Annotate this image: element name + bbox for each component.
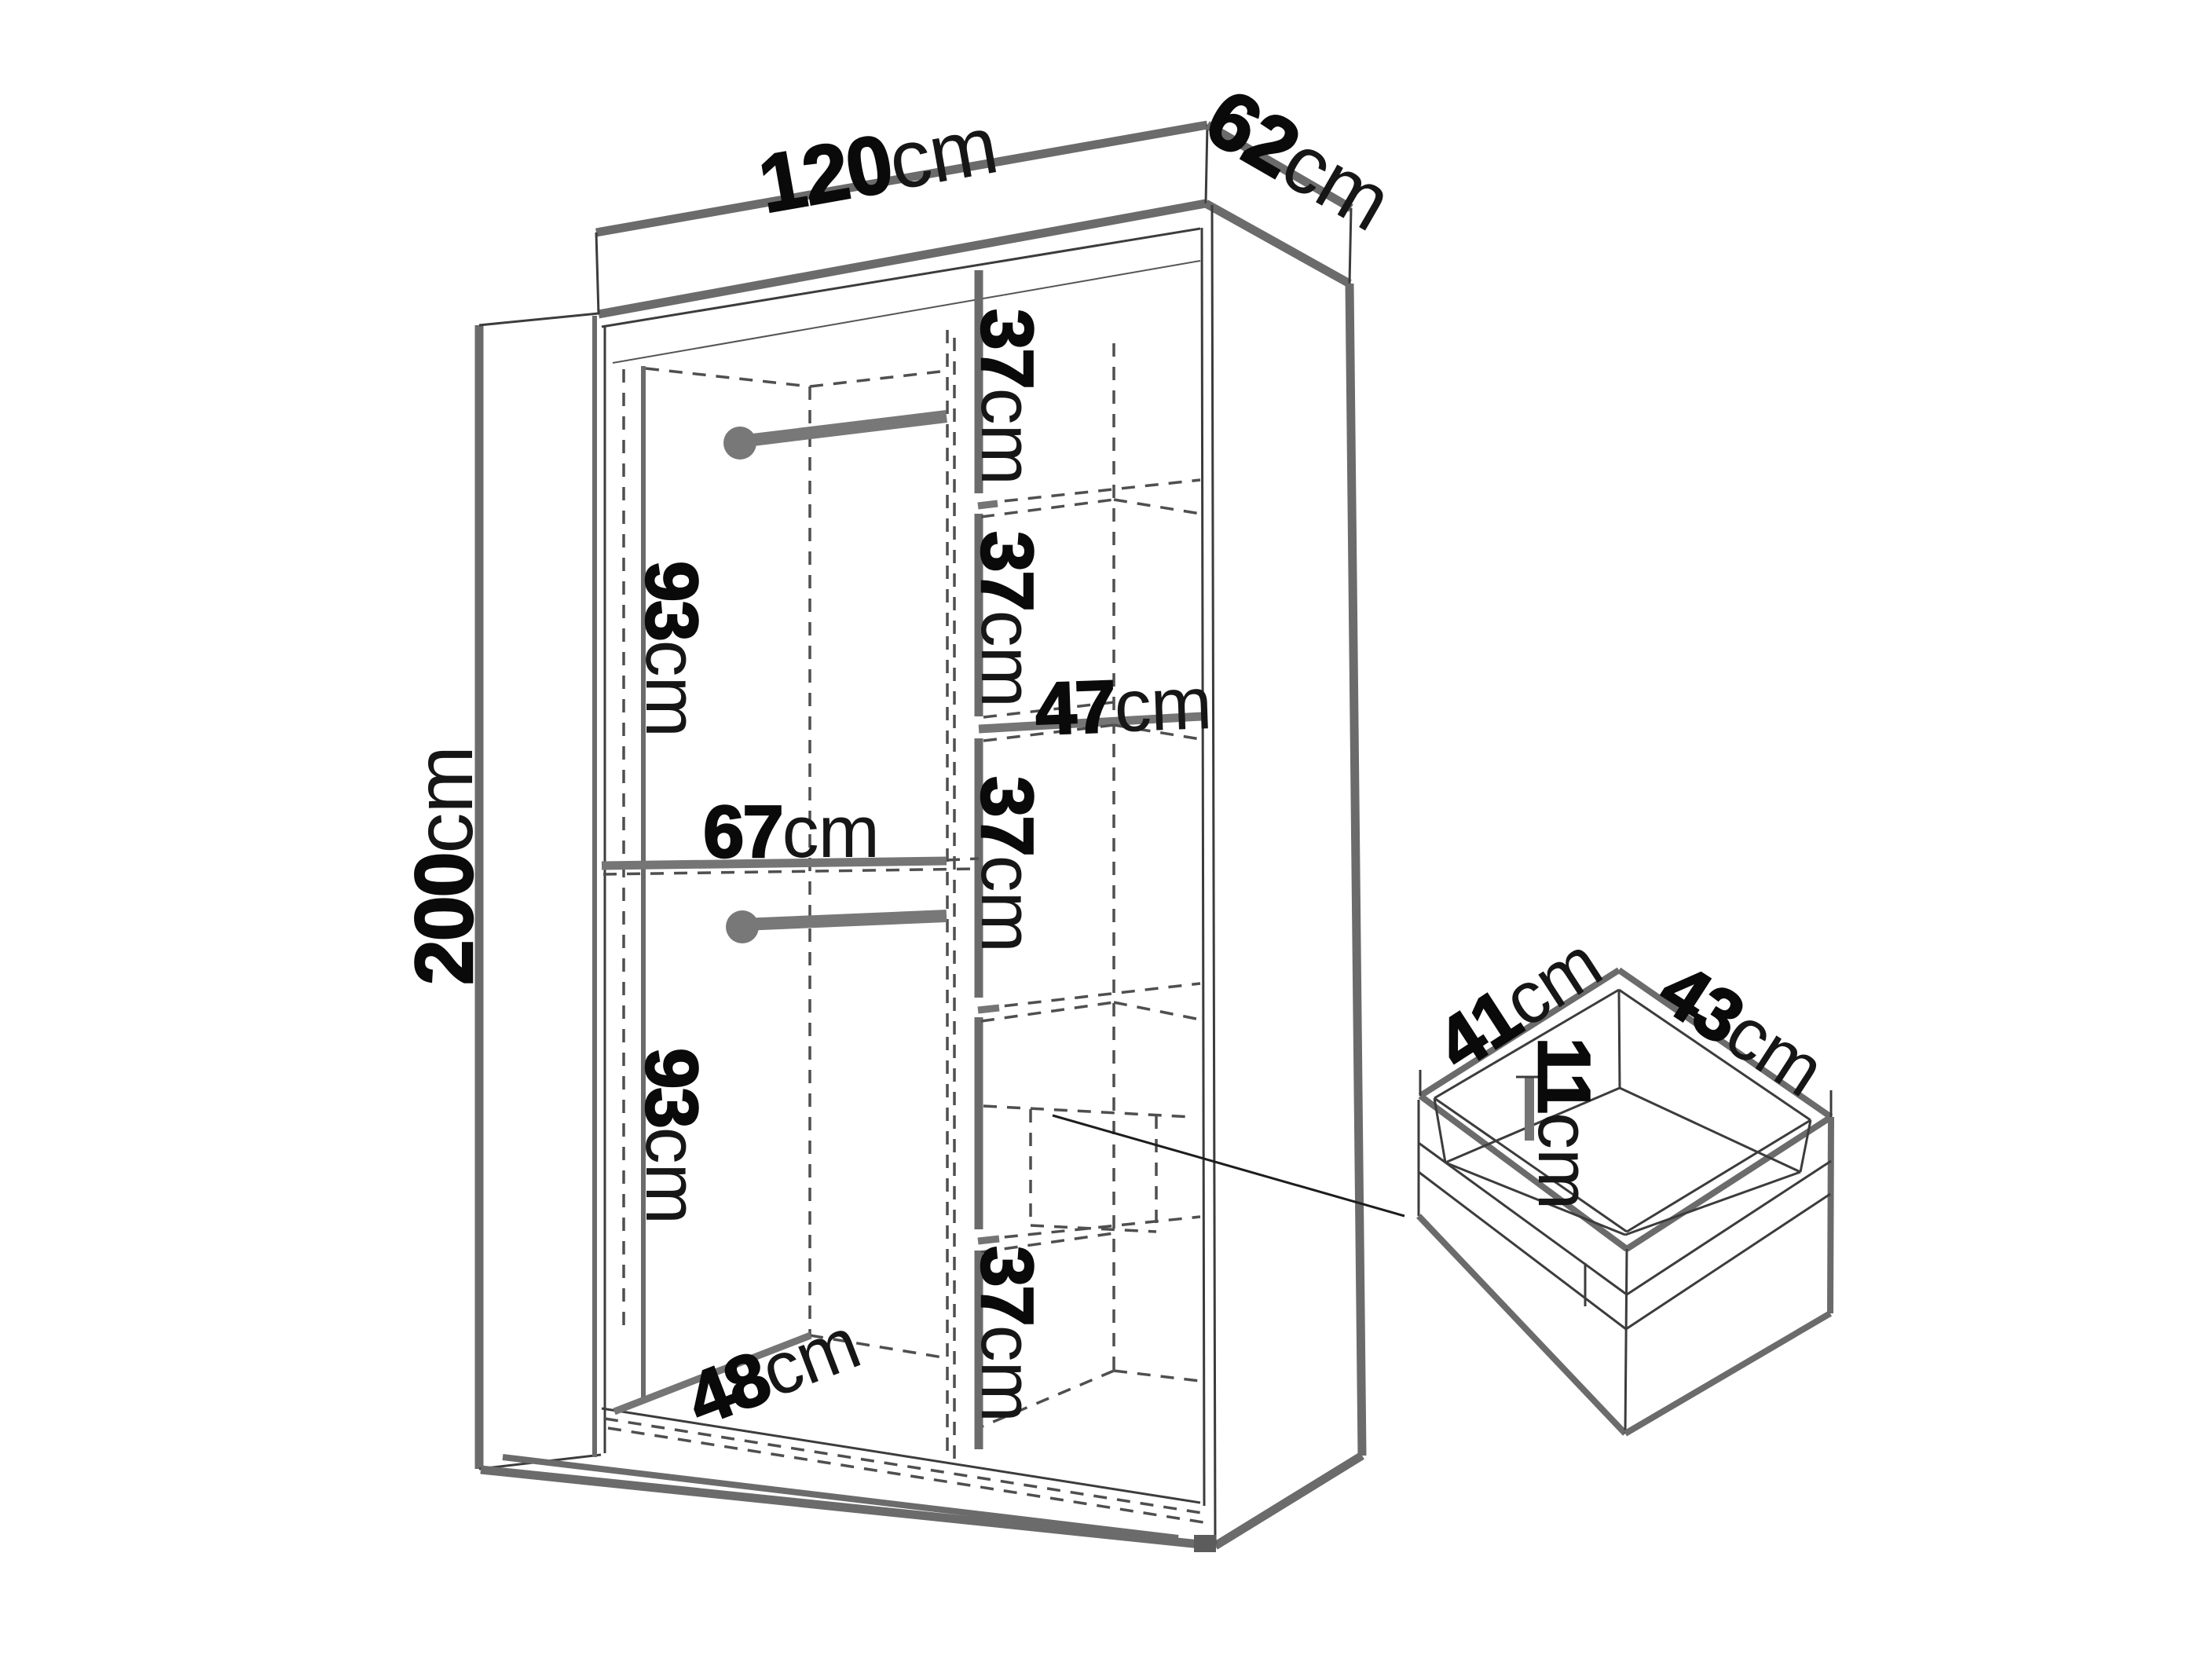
left-depth-label: 48cm <box>676 1301 870 1441</box>
diagram-canvas: 120cm 62cm 200cm 93cm 67cm 93cm 48cm 37c… <box>0 0 2212 1659</box>
height-label: 200cm <box>399 746 490 985</box>
drawer-drawing: 41cm 43cm 11cm <box>1419 921 1838 1434</box>
hanging-bottom-label: 93cm <box>632 1048 714 1224</box>
depth-label: 62cm <box>1191 72 1405 249</box>
drawer-height-label: 11cm <box>1524 1038 1606 1210</box>
wardrobe-drawing: 120cm 62cm 200cm 93cm 67cm 93cm 48cm 37c… <box>399 72 1406 1552</box>
hanging-rail-bottom <box>726 910 947 943</box>
shelf-spacing-label-3: 37cm <box>967 776 1049 952</box>
shelf-spacing-label-1: 37cm <box>967 309 1049 485</box>
hanging-rail-top <box>723 416 947 460</box>
drawer-width-label: 43cm <box>1646 947 1839 1111</box>
wardrobe-foot <box>1194 1535 1216 1552</box>
shelf-3 <box>978 983 1200 1021</box>
drawer-dimension-labels: 41cm 43cm 11cm <box>1423 921 1839 1209</box>
shelf-1 <box>978 480 1200 517</box>
wardrobe-interior-lines <box>602 229 1200 1427</box>
furniture-dimension-drawing: 120cm 62cm 200cm 93cm 67cm 93cm 48cm 37c… <box>0 0 2212 1659</box>
drawer-leader-line <box>1053 1115 1404 1216</box>
width-label: 120cm <box>753 99 1004 230</box>
left-width-label: 67cm <box>703 790 879 873</box>
shelf-width-label: 47cm <box>1034 661 1212 750</box>
drawer-walls <box>1419 1100 1831 1434</box>
shelf-spacing-label-4: 37cm <box>967 1246 1049 1422</box>
hanging-top-label: 93cm <box>632 561 714 737</box>
